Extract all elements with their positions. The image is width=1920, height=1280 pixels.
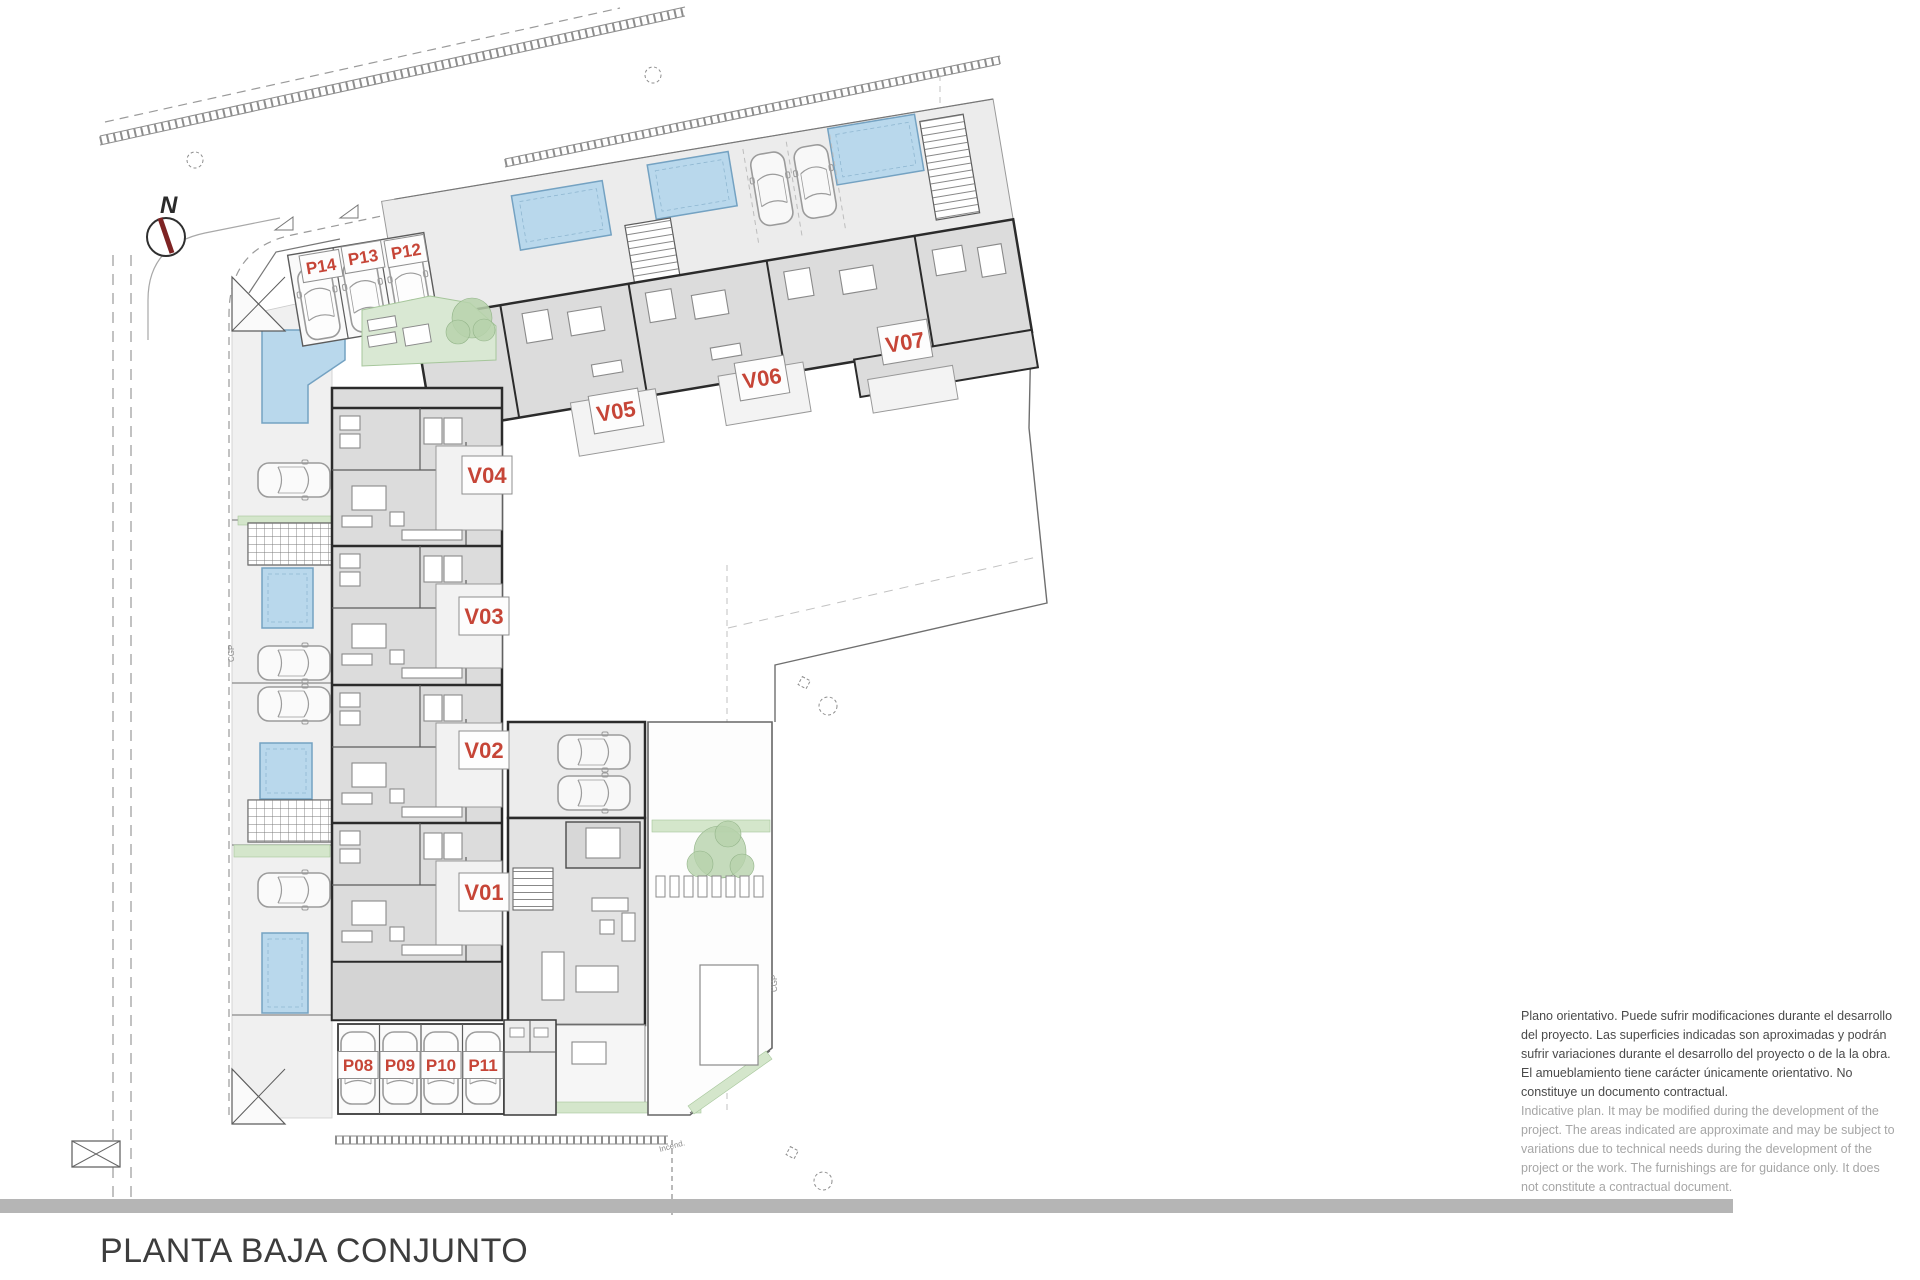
parking-label-P08: P08: [338, 1052, 378, 1079]
page-title: PLANTA BAJA CONJUNTO: [100, 1232, 528, 1271]
utility-box-icon: [786, 1147, 798, 1159]
pool: [260, 743, 312, 799]
communal-garden-terrace: [362, 296, 496, 366]
manhole-icon: [819, 697, 837, 715]
sofa: [592, 898, 628, 911]
hatched-boundary-a: [100, 7, 685, 145]
green-strip: [234, 845, 330, 857]
svg-text:V03: V03: [464, 604, 503, 629]
bed: [586, 828, 620, 858]
svg-text:P11: P11: [468, 1056, 497, 1075]
unit-label-V02: V02: [459, 731, 509, 769]
utility-label: CGP: [770, 975, 779, 992]
pool: [262, 933, 308, 1013]
disclaimer-line-es: Plano orientativo. Puede sufrir modifica…: [1521, 1007, 1920, 1026]
unit-label-V03: V03: [459, 597, 509, 635]
unit-label-V07: V07: [877, 319, 933, 365]
culvert-symbol: [72, 1141, 120, 1167]
parking-label-P10: P10: [421, 1052, 461, 1079]
unit-label-V06: V06: [734, 355, 790, 401]
unit-label-V05: V05: [588, 388, 644, 434]
disclaimer-line-es: del proyecto. Las superficies indicadas …: [1521, 1026, 1920, 1045]
svg-text:P08: P08: [343, 1056, 373, 1075]
utility-label: CGP: [227, 645, 236, 662]
service-rooms: [504, 1020, 556, 1115]
svg-text:P10: P10: [426, 1056, 456, 1075]
disclaimer-line-es: constituye un documento contractual.: [1521, 1083, 1920, 1102]
court-area: [700, 965, 758, 1065]
disclaimer-line-en: variations due to technical needs during…: [1521, 1140, 1920, 1159]
stairs: [625, 218, 680, 283]
pool: [262, 568, 313, 628]
disclaimer-line-en: project. The areas indicated are approxi…: [1521, 1121, 1920, 1140]
disclaimer-line-es: sufrir variaciones durante el desarrollo…: [1521, 1045, 1920, 1064]
disclaimer-text: Plano orientativo. Puede sufrir modifica…: [1521, 1007, 1920, 1197]
kitchen-island: [542, 952, 564, 1000]
ramp: [232, 277, 285, 331]
svg-text:V02: V02: [464, 738, 503, 763]
manhole-icon: [645, 67, 661, 83]
patio-table: [572, 1042, 606, 1064]
utility-box-icon: [798, 677, 810, 689]
north-compass: N: [147, 192, 185, 256]
disclaimer-line-es: El amueblamiento tiene carácter únicamen…: [1521, 1064, 1920, 1083]
coffee-table: [600, 920, 614, 934]
unit-label-V04: V04: [462, 456, 512, 494]
disclaimer-line-en: project or the work. The furnishings are…: [1521, 1159, 1920, 1178]
divider-bar: [0, 1199, 1733, 1213]
floor-plan-page: N V01V02V03V04V05V06V07 P08P09P10P11P12P…: [0, 0, 1920, 1280]
communal-house: [508, 818, 645, 1025]
disclaimer-line-en: not constitute a contractual document.: [1521, 1178, 1920, 1197]
right-garden: [648, 722, 772, 1115]
parking-label-P11: P11: [463, 1052, 503, 1079]
manhole-icon: [187, 152, 203, 168]
disclaimer-line-en: Indicative plan. It may be modified duri…: [1521, 1102, 1920, 1121]
stairs: [513, 868, 553, 910]
svg-text:P09: P09: [385, 1056, 415, 1075]
north-label: N: [160, 192, 178, 219]
outdoor-table: [403, 324, 432, 346]
dining-table: [576, 966, 618, 992]
svg-text:V01: V01: [464, 880, 503, 905]
parking-label-P09: P09: [380, 1052, 420, 1079]
manhole-icon: [814, 1172, 832, 1190]
unit-label-V01: V01: [459, 873, 509, 911]
svg-text:V04: V04: [467, 463, 507, 488]
sofa: [622, 913, 635, 941]
